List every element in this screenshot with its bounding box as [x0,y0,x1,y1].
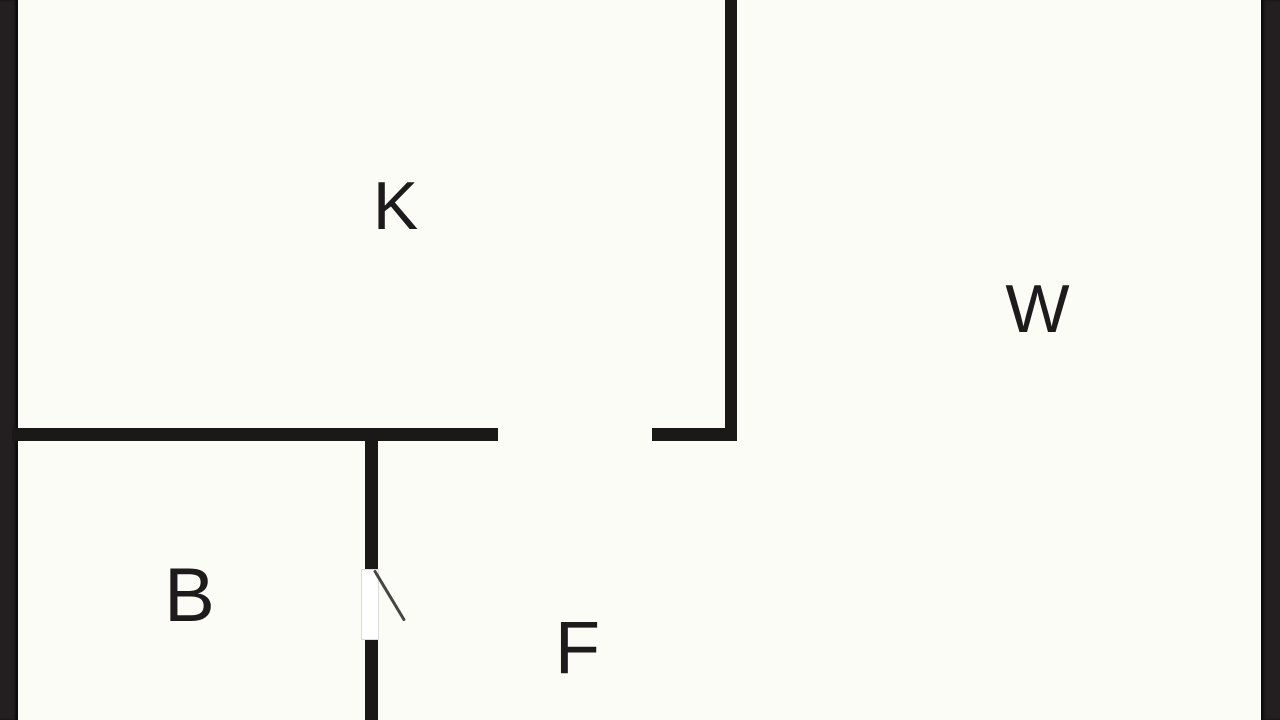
wall-horizontal-k-south [12,428,498,441]
wall-stub-doorway-right [652,428,737,441]
room-label-f: F [555,611,601,685]
wall-vertical-b-f-divider-upper [365,428,378,572]
room-label-w: W [1005,275,1070,343]
door-opening [361,569,379,640]
wall-vertical-k-w-divider [725,0,737,441]
floor-plan-canvas: K W B F [0,0,1280,720]
room-label-k: K [373,172,419,240]
wall-vertical-b-f-divider-lower [365,637,378,720]
letterbox-left-band [0,0,18,720]
letterbox-right-band [1261,0,1280,720]
room-label-b: B [164,558,216,634]
